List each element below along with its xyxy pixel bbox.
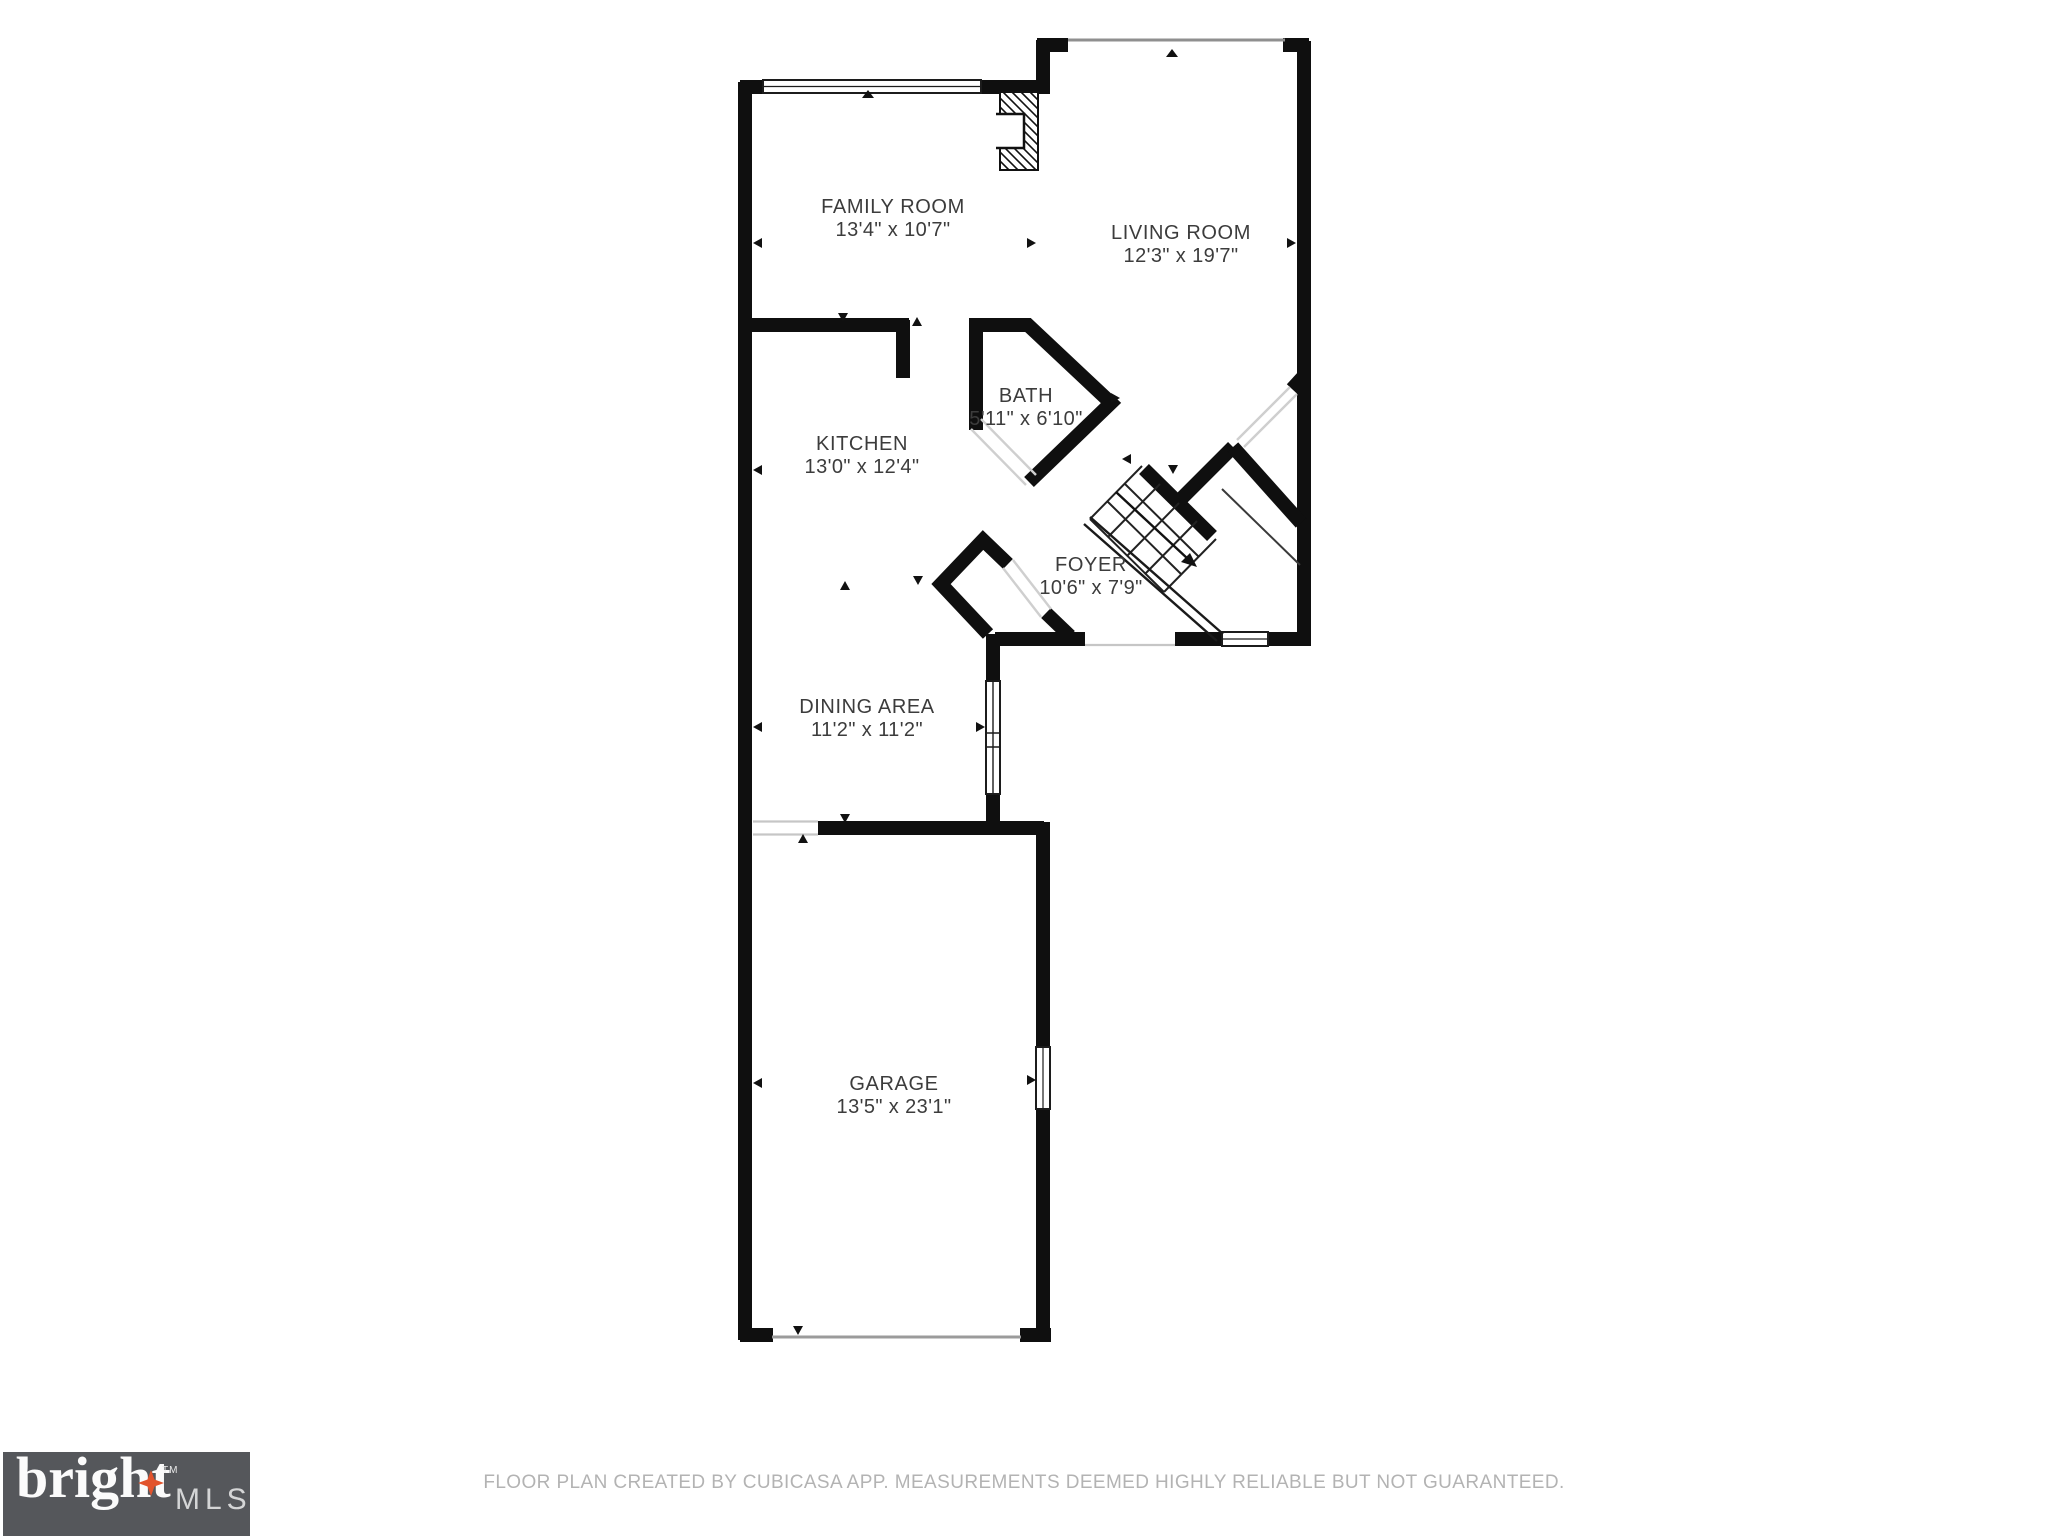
marker-garage-door <box>793 1326 803 1335</box>
opening-dining-garage <box>753 822 818 835</box>
marker-dining-left <box>753 722 762 732</box>
fireplace <box>922 92 1108 170</box>
garage-window <box>1036 1047 1050 1109</box>
foyer-window <box>1222 632 1268 646</box>
marker-slider <box>976 722 985 732</box>
door-lines <box>971 387 1297 617</box>
marker-garage-left <box>753 1078 762 1088</box>
wall-foyer-chevron <box>941 540 1008 634</box>
wall-door-stub-right <box>1292 377 1303 389</box>
logo-star-icon <box>138 1470 164 1496</box>
brightmls-logo: bright TM MLS <box>3 1452 250 1536</box>
fireplace-firebox <box>996 114 1024 148</box>
marker-kitchen-dining-a <box>840 581 850 590</box>
measure-markers <box>753 49 1296 1335</box>
marker-stairs-a <box>1122 454 1131 464</box>
windows <box>763 80 1268 1109</box>
marker-stairs-b <box>1168 465 1178 474</box>
marker-family-left <box>753 238 762 248</box>
marker-livingroom-right <box>1287 238 1296 248</box>
floor-plan-page: FAMILY ROOM 13'4" x 10'7" LIVING ROOM 12… <box>0 0 2048 1536</box>
disclaimer-text: FLOOR PLAN CREATED BY CUBICASA APP. MEAS… <box>0 1472 2048 1494</box>
dining-sliding-door <box>986 681 1000 794</box>
foyer-closet-door <box>1003 560 1051 617</box>
livingroom-corner-door <box>1237 387 1297 447</box>
logo-trademark: TM <box>162 1465 178 1476</box>
family-room-window <box>763 80 981 93</box>
marker-family-right <box>1027 238 1036 248</box>
marker-kitchen-left <box>753 465 762 475</box>
logo-suffix-text: MLS <box>175 1483 252 1517</box>
wall-stairs-closet <box>1233 447 1301 523</box>
opening-lines <box>753 645 1175 835</box>
marker-garage-right <box>1027 1075 1036 1085</box>
floor-plan-drawing <box>0 0 2048 1536</box>
marker-livingroom-top <box>1166 49 1178 57</box>
wall-bath <box>976 325 1111 482</box>
marker-kitchen-door-b <box>912 317 922 326</box>
walls <box>740 40 1309 1340</box>
marker-kitchen-dining-b <box>913 576 923 585</box>
